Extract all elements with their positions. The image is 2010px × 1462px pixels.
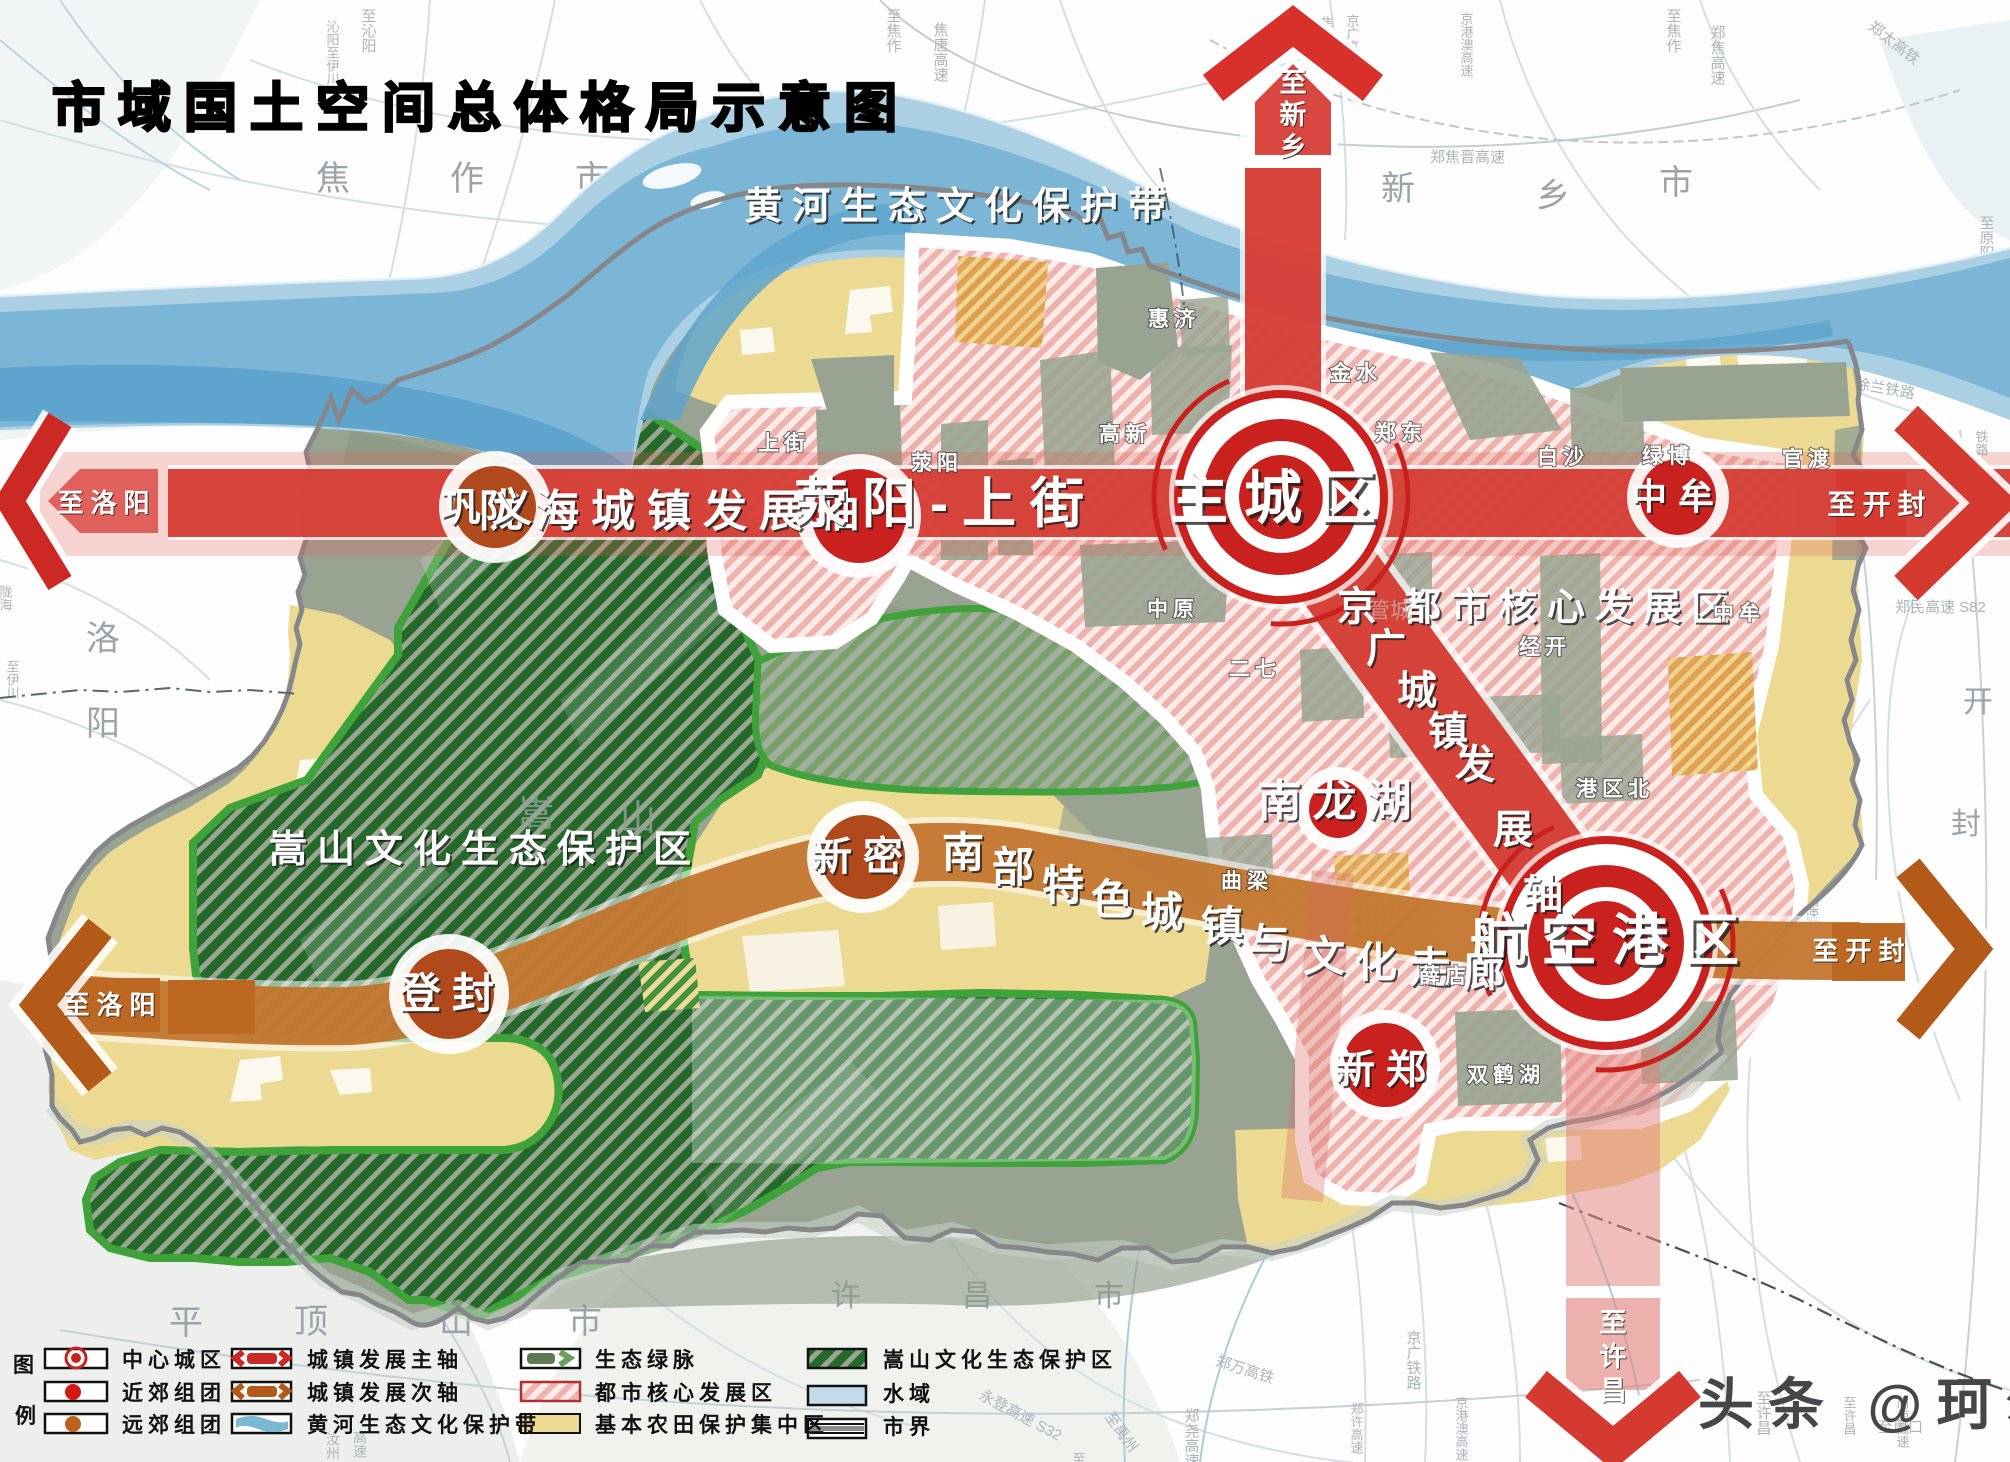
svg-text:化: 化 (1355, 939, 1397, 986)
svg-text:惠济: 惠济 (1148, 307, 1200, 331)
svg-text:至开封: 至开封 (1812, 936, 1911, 966)
svg-text:管城: 管城 (1368, 598, 1412, 623)
svg-text:薛店: 薛店 (1419, 964, 1471, 988)
svg-text:黄河生态文化保护带: 黄河生态文化保护带 (744, 186, 1176, 228)
svg-text:港区北: 港区北 (1576, 777, 1654, 801)
svg-text:文: 文 (1303, 933, 1345, 980)
svg-text:高新: 高新 (1099, 422, 1151, 446)
svg-text:部: 部 (992, 844, 1034, 891)
svg-text:城镇发展次轴: 城镇发展次轴 (307, 1381, 463, 1405)
svg-text:曲梁: 曲梁 (1221, 870, 1273, 893)
svg-text:京广铁路: 京广铁路 (1405, 1330, 1422, 1390)
svg-text:市界: 市界 (883, 1415, 935, 1439)
svg-text:中牟: 中牟 (1713, 601, 1765, 625)
svg-text:图: 图 (13, 1354, 39, 1377)
svg-text:例: 例 (15, 1404, 41, 1428)
svg-text:焦唐高速: 焦唐高速 (932, 22, 949, 83)
svg-text:航空港区: 航空港区 (1470, 909, 1754, 972)
svg-text:白沙: 白沙 (1537, 445, 1589, 469)
svg-text:特: 特 (1042, 862, 1084, 909)
svg-text:市: 市 (1659, 164, 1697, 202)
svg-text:登封: 登封 (398, 970, 505, 1017)
svg-text:水域: 水域 (883, 1382, 935, 1406)
svg-text:黄河生态文化保护带: 黄河生态文化保护带 (307, 1413, 541, 1437)
svg-text:镇: 镇 (1201, 903, 1243, 950)
svg-text:南: 南 (942, 829, 984, 876)
svg-text:郑民高速 S82: 郑民高速 S82 (1895, 599, 1986, 616)
svg-text:乡: 乡 (1536, 177, 1574, 215)
svg-text:头条 @珂尔: 头条 @珂尔 (1698, 1373, 2010, 1436)
svg-text:至洛阳: 至洛阳 (63, 990, 162, 1020)
svg-text:至许昌: 至许昌 (1071, 1452, 1086, 1462)
svg-text:郑许高速: 郑许高速 (1349, 1402, 1364, 1454)
svg-text:沁阳至伊川: 沁阳至伊川 (325, 20, 340, 85)
svg-text:中心城区: 中心城区 (122, 1348, 226, 1372)
svg-text:荥阳: 荥阳 (911, 452, 963, 475)
svg-text:官渡: 官渡 (1782, 447, 1834, 471)
svg-text:新密: 新密 (812, 835, 914, 879)
svg-text:新郑: 新郑 (1335, 1048, 1437, 1092)
svg-text:郑焦高速: 郑焦高速 (1709, 25, 1726, 86)
svg-text:焦: 焦 (316, 160, 354, 198)
svg-text:郑尧高速: 郑尧高速 (1183, 1408, 1200, 1462)
svg-text:远郊组团: 远郊组团 (122, 1413, 226, 1437)
svg-text:展: 展 (1493, 808, 1533, 852)
svg-text:至洛阳: 至洛阳 (57, 488, 156, 518)
svg-text:至沁阳: 至沁阳 (360, 8, 377, 53)
svg-text:上街: 上街 (758, 431, 810, 455)
svg-text:荥阳-上街: 荥阳-上街 (794, 474, 1098, 534)
svg-text:绿博: 绿博 (1642, 444, 1694, 468)
svg-text:基本农田保护集中区: 基本农田保护集中区 (595, 1413, 829, 1437)
svg-text:开: 开 (1963, 686, 1997, 719)
svg-text:昌: 昌 (1600, 1376, 1627, 1406)
svg-text:市域国土空间总体格局示意图: 市域国土空间总体格局示意图 (52, 79, 910, 138)
svg-text:主城区: 主城区 (1170, 466, 1392, 531)
svg-text:至伊川: 至伊川 (5, 660, 20, 699)
svg-text:平: 平 (169, 1304, 207, 1342)
svg-text:作: 作 (450, 160, 488, 198)
svg-text:新: 新 (1381, 170, 1419, 208)
svg-text:山: 山 (620, 797, 656, 838)
svg-text:至: 至 (1280, 68, 1307, 98)
svg-text:城镇发展主轴: 城镇发展主轴 (307, 1348, 463, 1372)
svg-text:生态绿脉: 生态绿脉 (595, 1348, 699, 1372)
svg-text:都市核心发展区: 都市核心发展区 (1402, 587, 1739, 629)
svg-text:嵩: 嵩 (518, 793, 554, 834)
svg-text:金水: 金水 (1329, 361, 1382, 385)
svg-text:嵩山文化生态保护区: 嵩山文化生态保护区 (883, 1348, 1117, 1372)
svg-text:近郊组团: 近郊组团 (122, 1381, 226, 1405)
svg-text:城: 城 (1141, 889, 1183, 936)
svg-text:新: 新 (1280, 99, 1307, 130)
svg-text:二七: 二七 (1229, 658, 1281, 681)
svg-text:发: 发 (1455, 743, 1495, 787)
svg-text:至焦作: 至焦作 (1665, 8, 1682, 53)
svg-text:至: 至 (1600, 1308, 1627, 1338)
svg-text:京港澳高速: 京港澳高速 (1459, 12, 1474, 77)
svg-text:阳: 阳 (86, 705, 124, 743)
svg-text:许: 许 (1600, 1342, 1627, 1372)
svg-text:色: 色 (1091, 876, 1133, 923)
svg-text:轴: 轴 (1523, 873, 1563, 917)
svg-text:南龙湖: 南龙湖 (1258, 777, 1423, 826)
svg-text:至开封: 至开封 (1827, 489, 1932, 520)
svg-text:洛: 洛 (86, 620, 124, 658)
svg-text:陇海: 陇海 (0, 585, 13, 611)
svg-text:郑焦晋高速: 郑焦晋高速 (1430, 149, 1505, 166)
svg-text:巩义: 巩义 (441, 486, 543, 530)
svg-text:顶: 顶 (294, 1303, 332, 1341)
svg-text:乡: 乡 (1280, 132, 1307, 162)
svg-text:郑东: 郑东 (1375, 421, 1427, 445)
svg-text:与: 与 (1249, 920, 1291, 967)
svg-text:中牟: 中牟 (1631, 476, 1725, 517)
svg-text:经开: 经开 (1519, 635, 1571, 659)
svg-text:双鹤湖: 双鹤湖 (1467, 1063, 1545, 1087)
svg-text:中原: 中原 (1147, 598, 1199, 621)
svg-text:京港澳高速: 京港澳高速 (1454, 1396, 1469, 1461)
svg-text:封: 封 (1951, 808, 1985, 841)
svg-text:都市核心发展区: 都市核心发展区 (594, 1381, 777, 1405)
svg-text:至焦作: 至焦作 (885, 8, 902, 53)
svg-text:广: 广 (1366, 627, 1406, 671)
svg-text:城: 城 (1397, 669, 1437, 713)
